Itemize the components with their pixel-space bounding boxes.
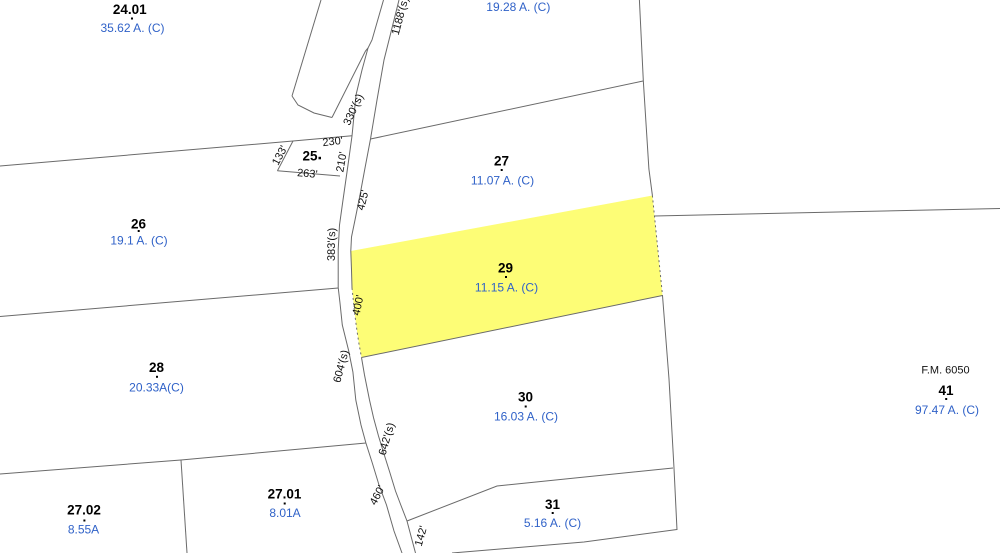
svg-text:11.07 A. (C): 11.07 A. (C) xyxy=(471,174,534,188)
svg-text:41: 41 xyxy=(938,383,954,398)
svg-text:19.1 A. (C): 19.1 A. (C) xyxy=(110,234,167,248)
svg-text:20.33A(C): 20.33A(C) xyxy=(129,381,184,395)
svg-text:5.16 A. (C): 5.16 A. (C) xyxy=(524,516,581,530)
svg-text:28: 28 xyxy=(149,360,165,375)
svg-text:19.28 A. (C): 19.28 A. (C) xyxy=(486,0,550,14)
svg-text:F.M. 6050: F.M. 6050 xyxy=(921,365,969,377)
svg-text:31: 31 xyxy=(545,497,561,512)
svg-text:263': 263' xyxy=(297,167,318,181)
svg-text:383'(s): 383'(s) xyxy=(326,228,339,261)
svg-text:97.47 A. (C): 97.47 A. (C) xyxy=(915,403,979,417)
svg-text:230': 230' xyxy=(322,135,344,149)
svg-text:29: 29 xyxy=(498,261,513,276)
svg-text:8.01A: 8.01A xyxy=(269,506,300,520)
svg-text:35.62 A. (C): 35.62 A. (C) xyxy=(100,21,164,35)
svg-text:24.01: 24.01 xyxy=(113,2,147,17)
svg-text:27.01: 27.01 xyxy=(268,487,302,502)
svg-text:30: 30 xyxy=(518,390,533,405)
svg-text:27.02: 27.02 xyxy=(67,503,101,518)
svg-text:27: 27 xyxy=(494,154,509,169)
svg-text:8.55A: 8.55A xyxy=(68,523,99,537)
svg-text:16.03 A. (C): 16.03 A. (C) xyxy=(494,410,558,424)
svg-text:11.15 A. (C): 11.15 A. (C) xyxy=(475,281,538,295)
svg-text:25: 25 xyxy=(302,149,318,164)
svg-text:26: 26 xyxy=(131,217,147,232)
